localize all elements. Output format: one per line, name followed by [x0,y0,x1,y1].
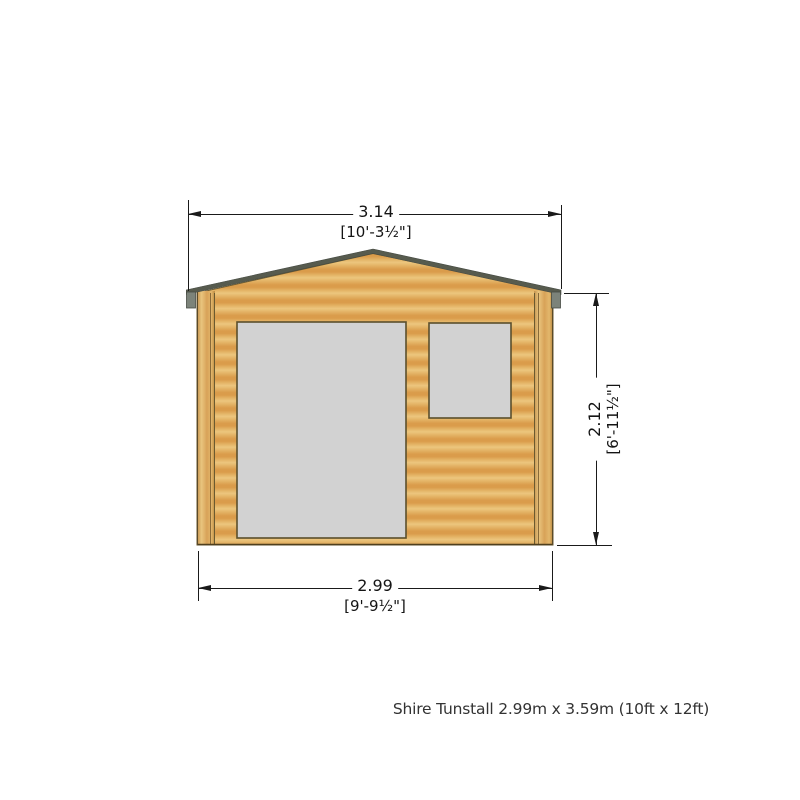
roof-end-tab-left [187,292,196,308]
extension-line [564,293,609,294]
extension-line [561,205,562,289]
corner-post-right [534,291,553,545]
corner-post-left [197,291,215,545]
wall-width-imperial-label: [9'-9½"] [339,596,411,616]
product-caption: Shire Tunstall 2.99m x 3.59m (10ft x 12f… [393,700,709,718]
eaves-height-metric-label: 2.12 [585,383,604,454]
eaves-height-label-group: 2.12 [6'-11½"] [583,377,625,460]
elevation-drawing-page: 3.14 [10'-3½"] 2.12 [6'-11½"] 2.99 [9'-9… [0,0,800,800]
cabin-front-elevation [186,247,564,548]
arrowhead-right-icon [539,585,552,591]
overall-width-metric-label: 3.14 [353,202,399,222]
arrowhead-left-icon [198,585,211,591]
arrowhead-up-icon [593,293,599,306]
extension-line [198,551,199,601]
extension-line [557,545,612,546]
arrowhead-right-icon [548,211,561,217]
door [237,322,406,538]
arrowhead-left-icon [188,211,201,217]
window [429,323,511,418]
extension-line [552,551,553,601]
eaves-height-imperial-label: [6'-11½"] [604,383,623,454]
overall-width-imperial-label: [10'-3½"] [335,222,416,242]
wall-width-metric-label: 2.99 [352,576,398,596]
arrowhead-down-icon [593,532,599,545]
roof-end-tab-right [552,292,561,308]
